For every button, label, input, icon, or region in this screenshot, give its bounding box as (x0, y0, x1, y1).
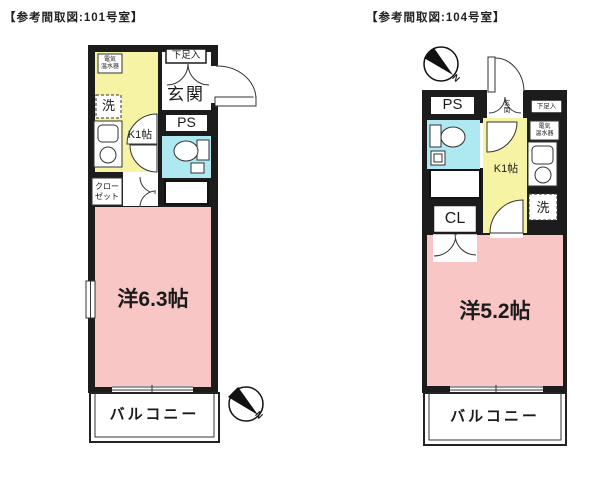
floor-plan-page: { "colors": { "wall": "#1c1c1c", "room_p… (0, 0, 600, 477)
bath-box-104 (430, 170, 480, 198)
room-size-label-104: 洋5.2帖 (427, 297, 563, 327)
plan-101-title: 【参考間取図:101号室】 (4, 11, 204, 27)
entrance-door-104 (488, 57, 524, 92)
balcony-label-101: バルコニー (92, 403, 217, 427)
entrance-label-104: 玄 関 (499, 97, 515, 117)
closet-label-104: CL (433, 205, 477, 233)
shoe-box-label-101: 下足入 (166, 49, 206, 63)
kitchen-unit-104 (528, 142, 557, 186)
washer-label-104: 洗 (529, 196, 557, 220)
window-left-101 (86, 281, 95, 318)
room-size-label-101: 洋6.3帖 (95, 285, 211, 315)
entrance-label-101: 玄関 (162, 82, 210, 108)
washer-label-101: 洗 (96, 95, 121, 118)
closet-label-101: クロー ゼット (92, 178, 122, 205)
kitchen-label-104: K1帖 (486, 161, 526, 177)
water-heater-label-101: 電気 温水器 (98, 54, 122, 73)
balcony-label-104: バルコニー (427, 405, 563, 429)
kitchen-label-101: K1帖 (119, 127, 161, 143)
pipe-space-label-104: PS (430, 95, 475, 115)
shoe-box-label-104: 下足入 (531, 100, 562, 113)
water-heater-label-104: 電気 温水器 (530, 121, 559, 140)
pipe-space-label-101: PS (165, 113, 208, 132)
plan-104-title: 【参考間取図:104号室】 (366, 11, 566, 27)
entrance-door-101 (215, 66, 256, 106)
kitchen-unit-101 (94, 121, 122, 167)
bath-box-101 (165, 181, 208, 204)
